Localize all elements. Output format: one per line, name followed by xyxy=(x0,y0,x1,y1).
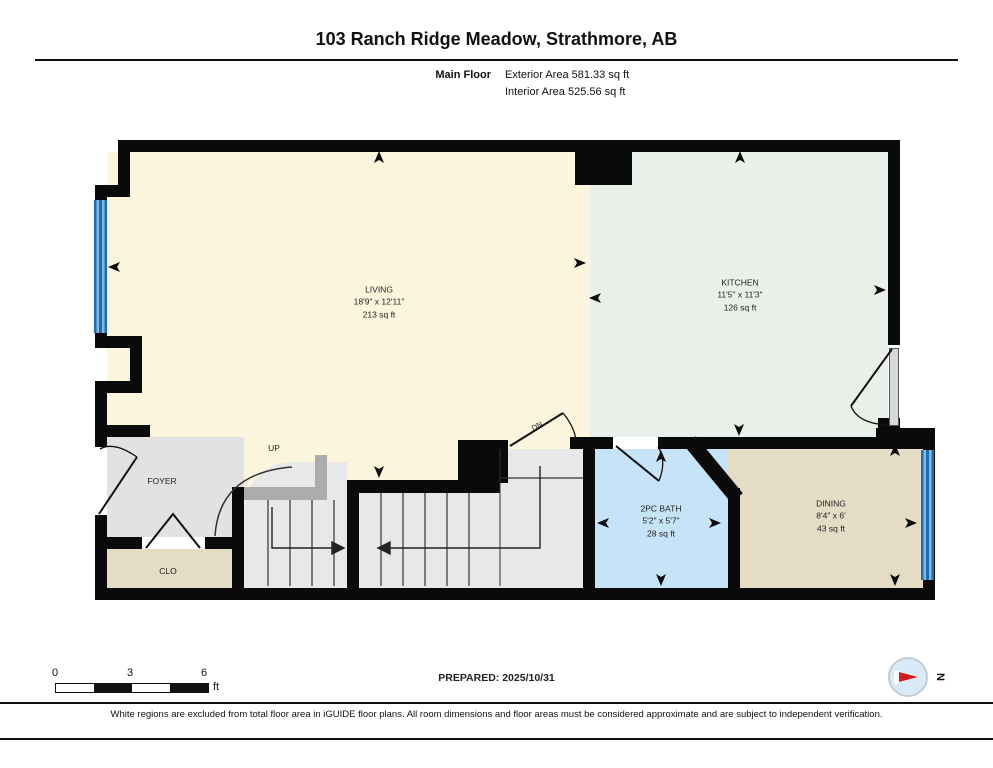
wall-segment xyxy=(118,140,900,152)
exterior-area-text: Exterior Area 581.33 sq ft xyxy=(505,69,705,81)
wall-segment xyxy=(347,485,359,588)
compass-north-label: N xyxy=(934,673,946,681)
stair-railing-horizontal xyxy=(244,487,319,500)
wall-segment xyxy=(458,440,508,483)
footer-divider-top xyxy=(0,702,993,704)
dining-label: DINING8'4" x 6'43 sq ft xyxy=(816,498,846,535)
foyer-label: FOYER xyxy=(147,476,176,486)
chimney-block xyxy=(575,152,632,185)
wall-segment xyxy=(888,140,900,345)
wall-segment xyxy=(95,381,142,393)
window-living-left xyxy=(94,200,107,333)
bath-label: 2PC BATH5'2" x 5'7"28 sq ft xyxy=(641,503,682,540)
interior-area-text: Interior Area 525.56 sq ft xyxy=(505,86,705,98)
compass-icon xyxy=(884,653,932,701)
wall-segment xyxy=(95,393,107,447)
closet-label: CLO xyxy=(159,566,176,576)
scale-segment xyxy=(56,684,94,692)
wall-segment xyxy=(728,488,740,588)
page-title: 103 Ranch Ridge Meadow, Strathmore, AB xyxy=(0,29,993,50)
floor-label: Main Floor xyxy=(383,69,491,81)
wall-segment xyxy=(95,537,142,549)
wall-segment xyxy=(583,437,595,600)
header-divider xyxy=(35,59,958,61)
footer-divider-bottom xyxy=(0,738,993,740)
disclaimer-text: White regions are excluded from total fl… xyxy=(0,709,993,720)
wall-segment xyxy=(95,425,150,437)
wall-segment xyxy=(658,437,935,449)
foyer-area xyxy=(107,437,244,537)
stair-landing-area xyxy=(500,449,583,588)
stairs-down-area xyxy=(359,493,500,588)
wall-segment xyxy=(232,487,244,588)
scale-segment xyxy=(170,684,208,692)
living-room-label: LIVING18'9" x 12'11"213 sq ft xyxy=(354,284,405,321)
wall-segment xyxy=(95,588,935,600)
kitchen-label: KITCHEN11'5" x 11'3"126 sq ft xyxy=(717,277,762,314)
kitchen-door-panel xyxy=(889,348,899,426)
wall-segment xyxy=(583,437,613,449)
window-dining-right xyxy=(921,450,934,580)
stairs-up-area xyxy=(244,462,347,588)
stair-railing-vertical xyxy=(315,455,327,500)
floorplan-page: 103 Ranch Ridge Meadow, Strathmore, AB M… xyxy=(0,0,993,768)
stairs-up-label: UP xyxy=(268,443,280,453)
scale-bar xyxy=(55,683,209,693)
scale-segment xyxy=(94,684,132,692)
scale-segment xyxy=(132,684,170,692)
